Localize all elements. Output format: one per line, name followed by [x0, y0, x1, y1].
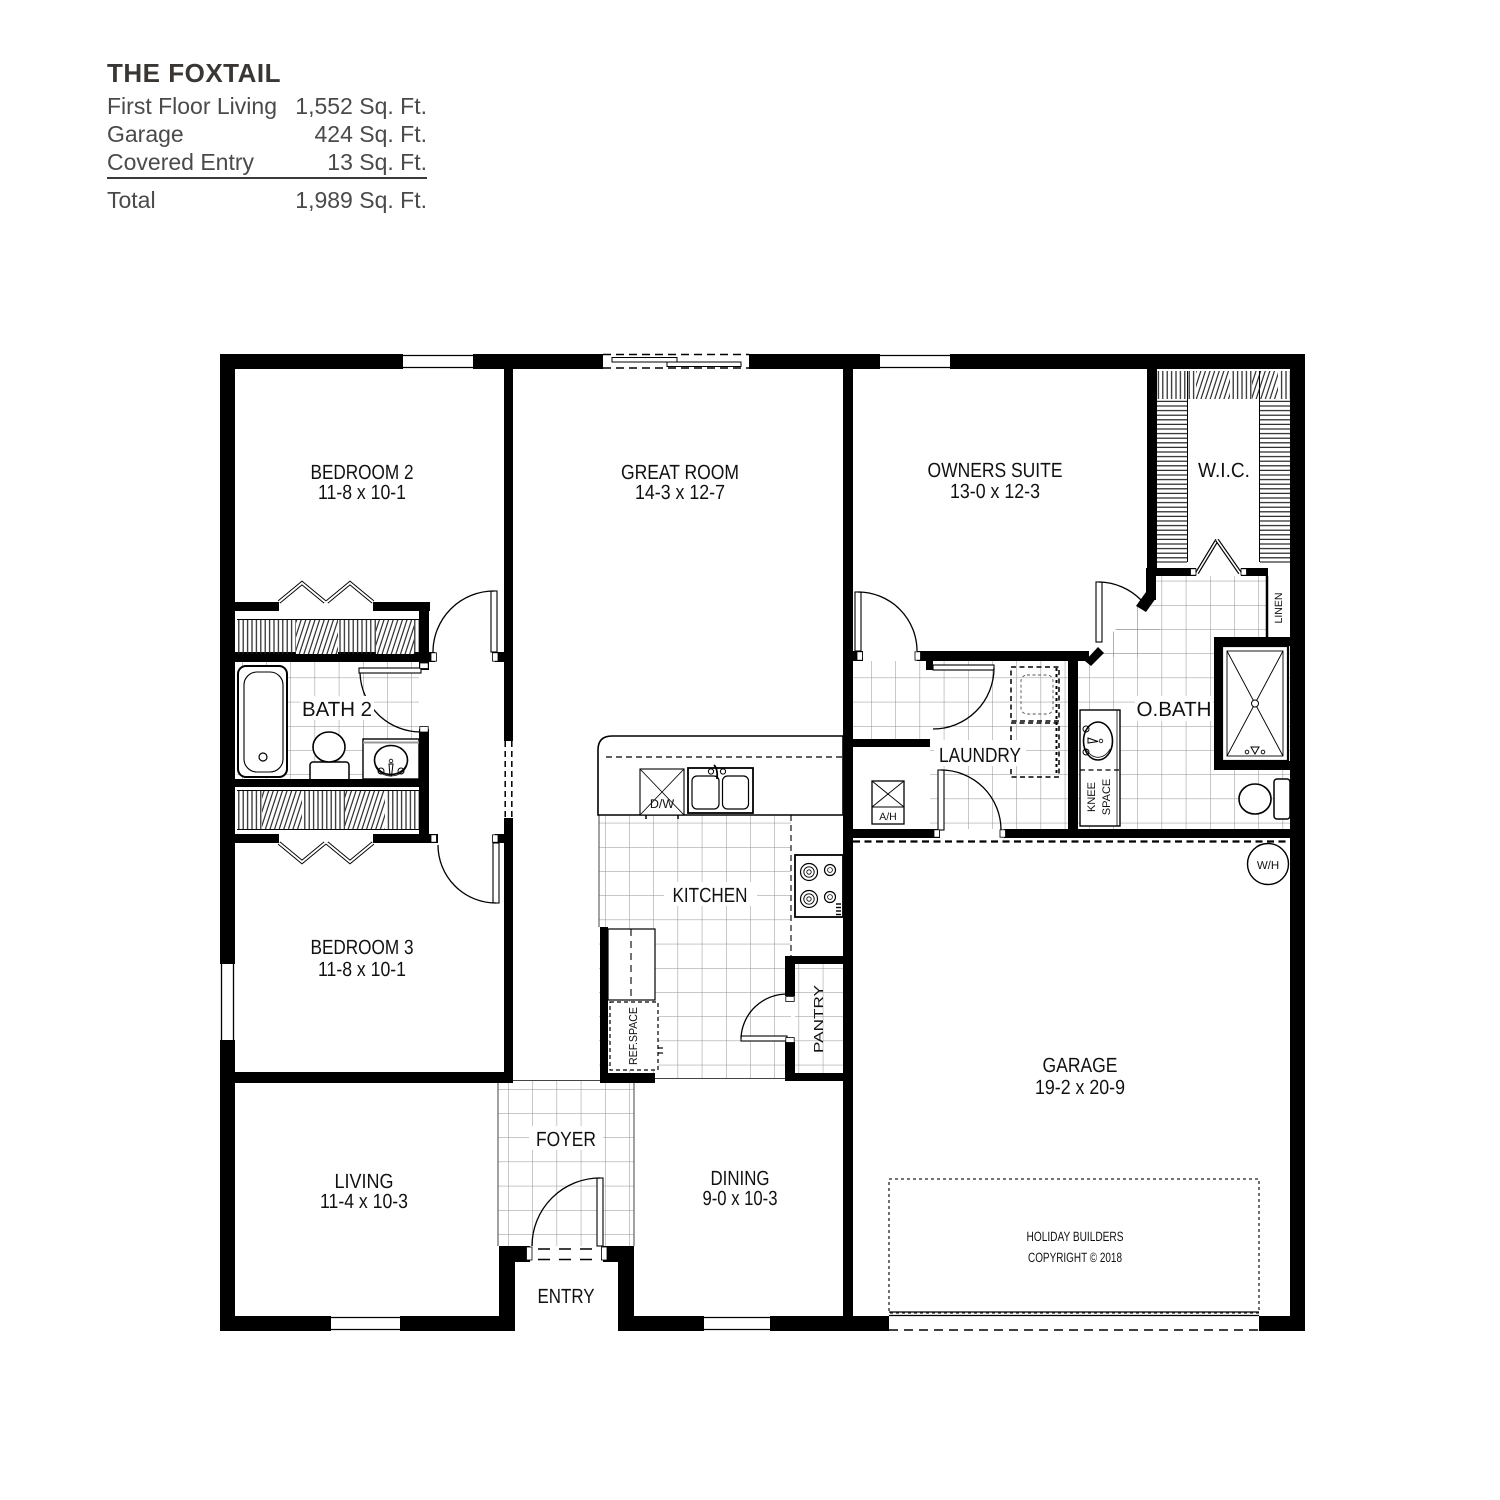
svg-text:LINEN: LINEN: [1273, 593, 1285, 624]
svg-text:13-0 x 12-3: 13-0 x 12-3: [950, 480, 1040, 503]
svg-text:OWNERS SUITE: OWNERS SUITE: [928, 459, 1063, 482]
svg-text:11-4 x 10-3: 11-4 x 10-3: [320, 1190, 408, 1213]
svg-text:W/H: W/H: [1257, 860, 1279, 872]
svg-text:9-0 x 10-3: 9-0 x 10-3: [703, 1187, 778, 1210]
svg-text:BATH 2: BATH 2: [302, 698, 372, 721]
svg-text:A/H: A/H: [879, 811, 897, 823]
svg-text:REF.SPACE: REF.SPACE: [628, 1007, 640, 1065]
svg-text:14-3 x 12-7: 14-3 x 12-7: [635, 481, 725, 504]
svg-text:W.I.C.: W.I.C.: [1198, 459, 1250, 482]
svg-text:LAUNDRY: LAUNDRY: [939, 744, 1021, 767]
svg-text:D/W: D/W: [650, 797, 675, 811]
svg-text:HOLIDAY BUILDERS: HOLIDAY BUILDERS: [1027, 1229, 1124, 1244]
svg-text:O.BATH: O.BATH: [1137, 698, 1212, 721]
svg-text:GARAGE: GARAGE: [1043, 1054, 1118, 1077]
svg-text:KNEE: KNEE: [1086, 782, 1098, 812]
svg-text:SPACE: SPACE: [1101, 779, 1113, 815]
svg-text:FOYER: FOYER: [536, 1128, 596, 1151]
svg-text:11-8 x 10-1: 11-8 x 10-1: [318, 958, 406, 981]
svg-text:ENTRY: ENTRY: [538, 1285, 595, 1308]
svg-text:19-2 x 20-9: 19-2 x 20-9: [1035, 1076, 1125, 1099]
svg-text:11-8 x 10-1: 11-8 x 10-1: [318, 481, 406, 504]
svg-text:KITCHEN: KITCHEN: [673, 884, 748, 907]
svg-text:COPYRIGHT © 2018: COPYRIGHT © 2018: [1028, 1250, 1122, 1265]
svg-text:BEDROOM 3: BEDROOM 3: [311, 936, 414, 959]
svg-text:PANTRY: PANTRY: [811, 985, 826, 1053]
